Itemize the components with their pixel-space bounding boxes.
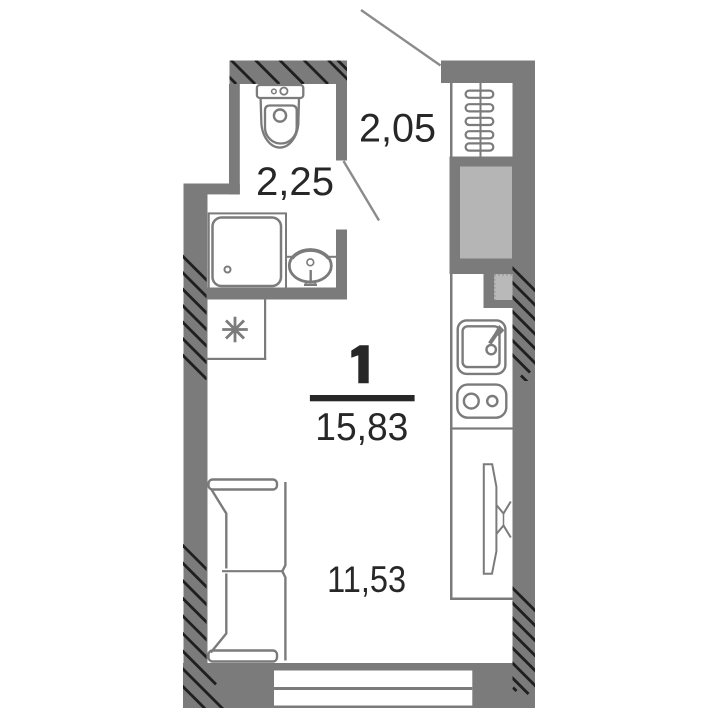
svg-text:2,25: 2,25 <box>256 160 334 204</box>
svg-text:15,83: 15,83 <box>315 406 408 449</box>
svg-text:2,05: 2,05 <box>359 107 436 151</box>
svg-text:11,53: 11,53 <box>327 558 406 600</box>
